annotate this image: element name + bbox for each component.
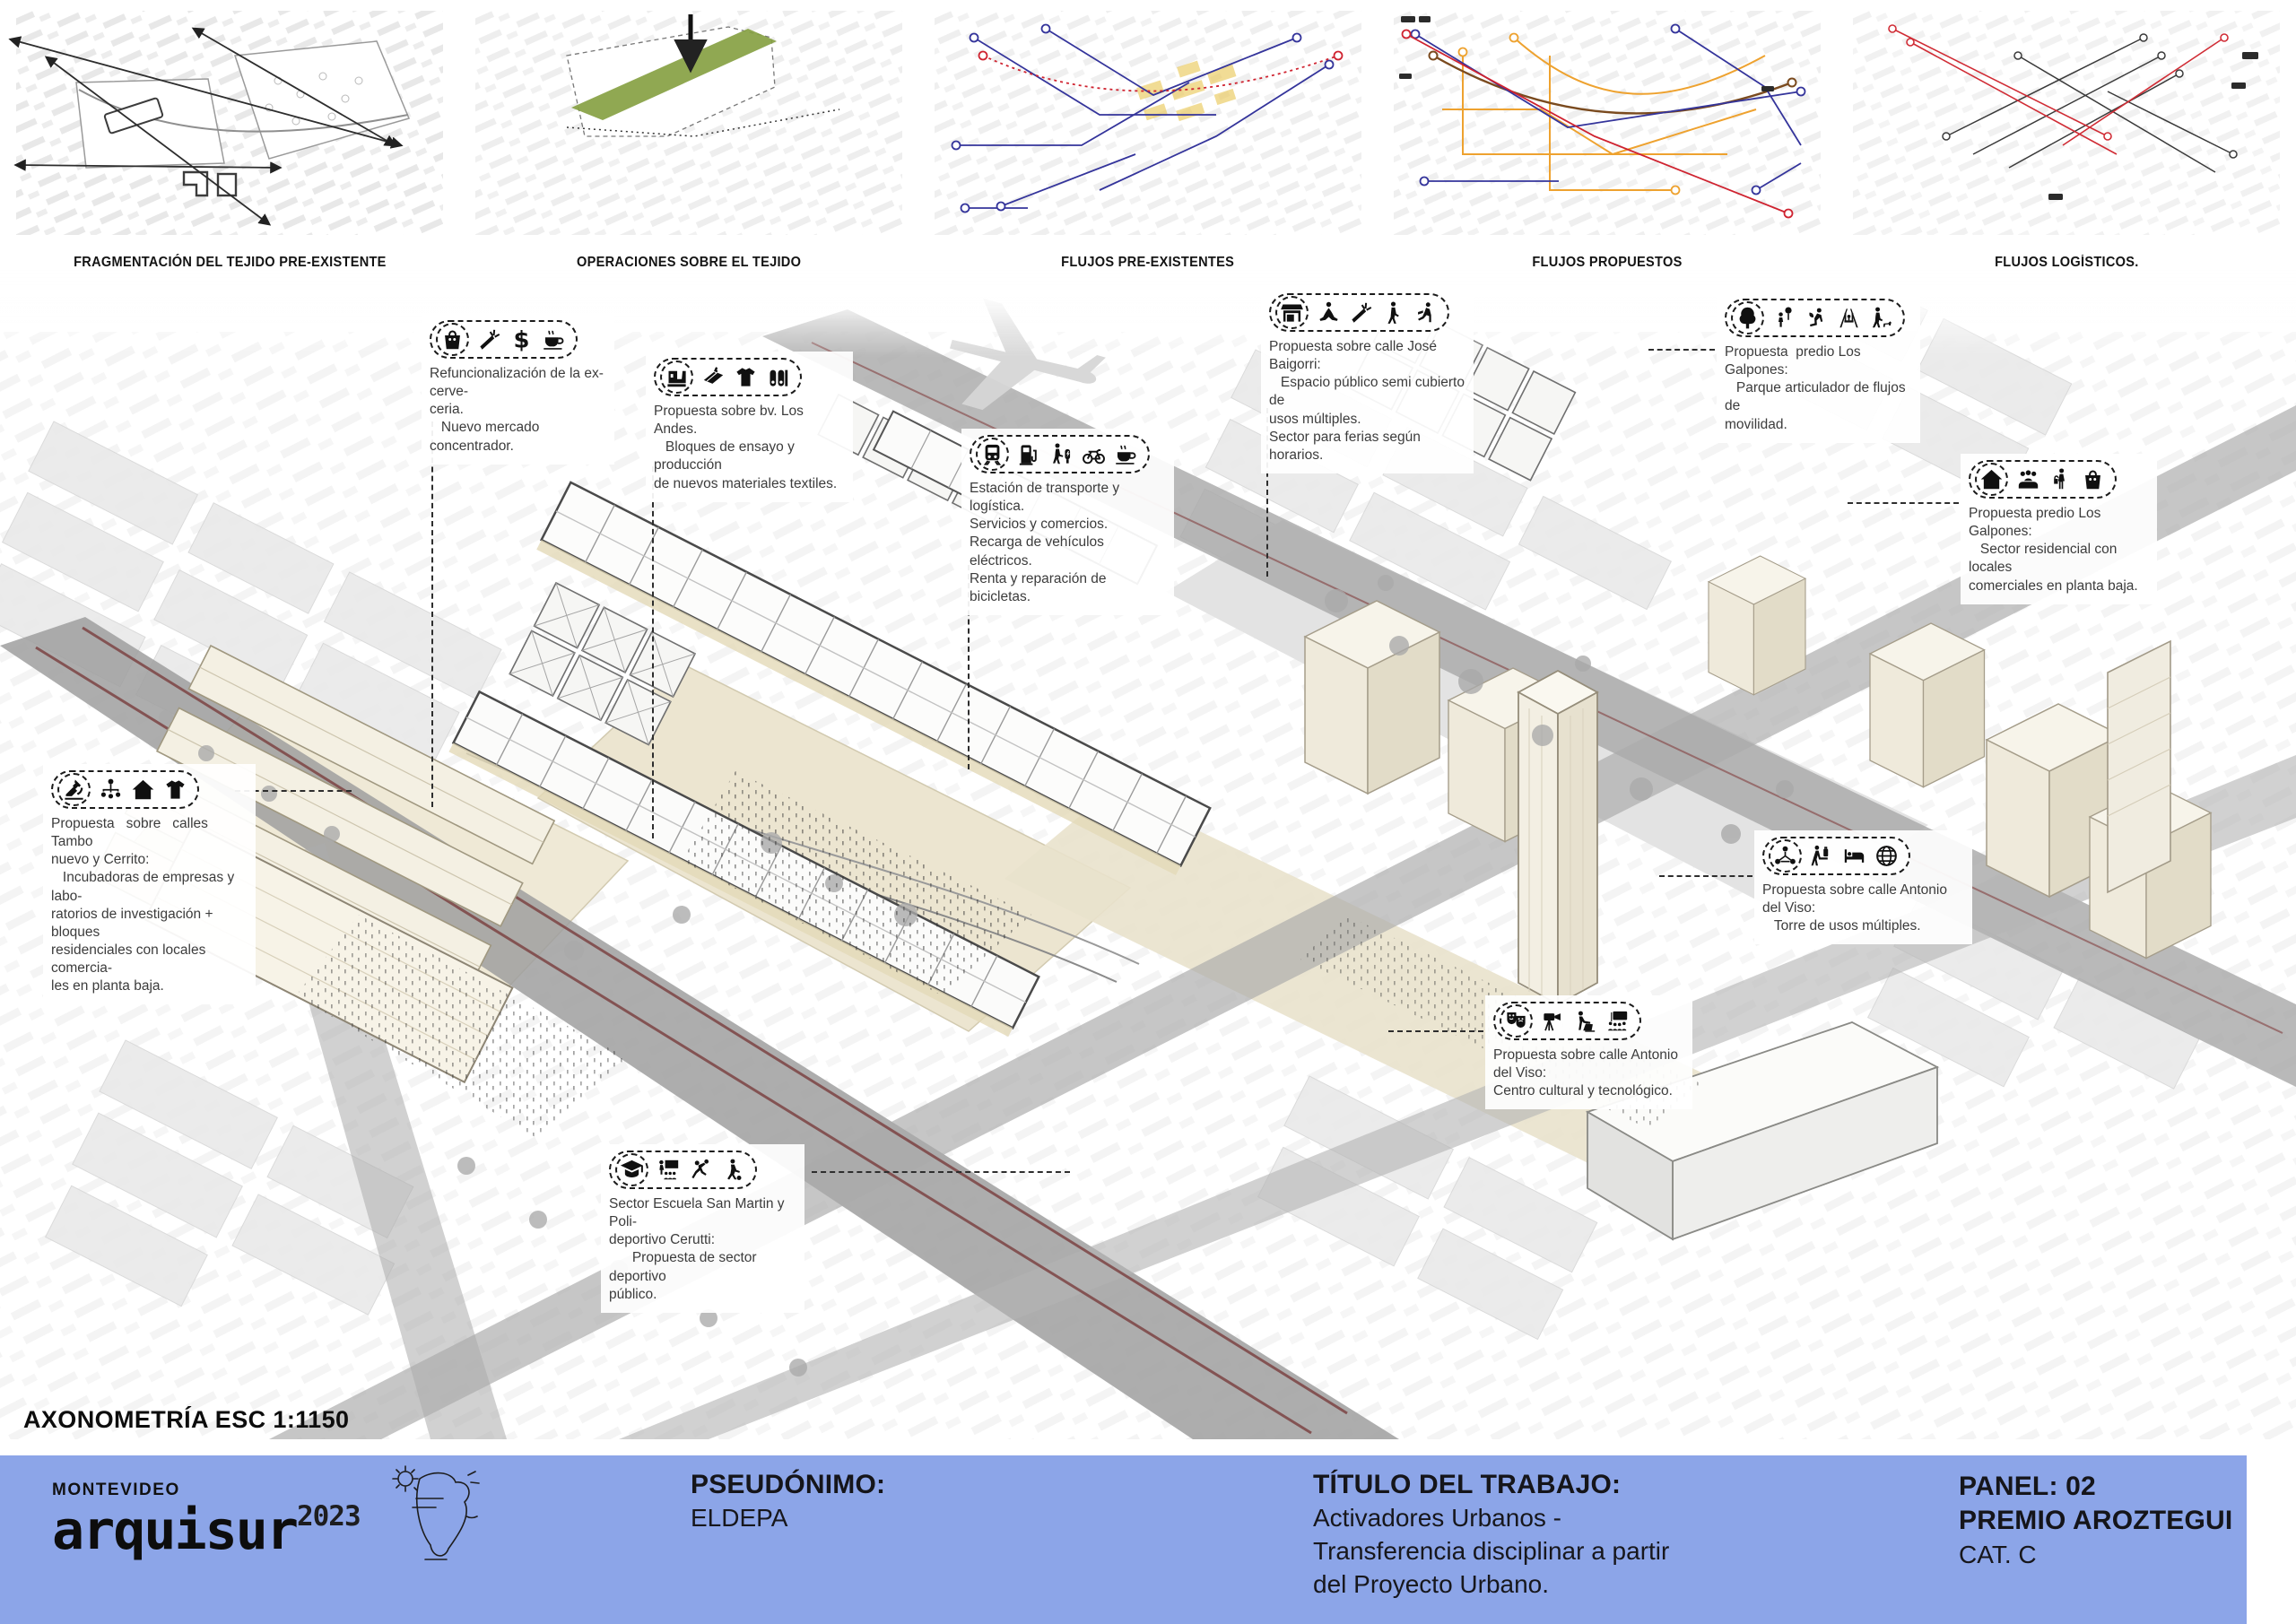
icon-capsule xyxy=(1762,837,1910,875)
callout-text: Propuesta predio Los Galpones: Parque ar… xyxy=(1725,343,1913,434)
bicycle-icon xyxy=(1082,442,1106,466)
icon-capsule xyxy=(1969,460,2117,499)
coffee-icon xyxy=(542,327,566,352)
reading-icon xyxy=(1413,300,1438,325)
charging-post-icon xyxy=(1049,442,1074,466)
callout-text: Propuesta predio Los Galpones: Sector re… xyxy=(1969,505,2150,595)
dollar-icon xyxy=(509,327,534,352)
axonometry-scale-label: AXONOMETRÍA ESC 1:1150 xyxy=(23,1406,349,1434)
logo-name: arquisur xyxy=(52,1499,297,1562)
callout-c10: Propuesta sobre calles Tambo nuevo y Cer… xyxy=(43,764,256,1004)
callout-text: Propuesta sobre calle Antonio del Viso: … xyxy=(1493,1046,1685,1100)
arquisur-logo: MONTEVIDEO arquisur2023 xyxy=(52,1481,361,1555)
diagram-existing-flows-label: FLUJOS PRE-EXISTENTES xyxy=(1062,255,1235,271)
carrot-icon xyxy=(1349,300,1373,325)
diagram-operations-figure xyxy=(459,0,918,253)
train-icon xyxy=(976,438,1009,471)
callout-text: Estación de transporte y logística. Serv… xyxy=(970,480,1167,606)
diagram-proposed-flows-figure xyxy=(1378,0,1837,253)
network-icon xyxy=(1769,839,1802,873)
diagram-logistic-flows-figure xyxy=(1837,0,2296,253)
leader-line-c9 xyxy=(812,1171,1070,1173)
icon-capsule xyxy=(1725,299,1905,337)
leader-line-c7 xyxy=(1659,875,1752,877)
footer-bar: MONTEVIDEO arquisur2023 PSEUDÓNIMO: ELDE… xyxy=(0,1455,2247,1624)
diagram-existing-flows: FLUJOS PRE-EXISTENTES xyxy=(918,0,1378,289)
diagram-fragmentation-figure xyxy=(0,0,459,253)
diagram-proposed-flows-label: FLUJOS PROPUESTOS xyxy=(1532,255,1682,271)
community-icon xyxy=(2016,467,2040,491)
child-balloon-icon xyxy=(1772,306,1796,330)
soccer-icon xyxy=(721,1158,745,1182)
hotel-bed-icon xyxy=(1842,844,1866,868)
leader-line-c8 xyxy=(1388,1030,1483,1032)
carrot-icon xyxy=(477,327,501,352)
diagram-fragmentation: FRAGMENTACIÓN DEL TEJIDO PRE-EXISTENTE xyxy=(0,0,459,289)
graduation-cap-icon xyxy=(615,1153,648,1186)
icon-capsule xyxy=(654,358,802,396)
basketball-icon xyxy=(689,1158,713,1182)
callout-c6: Propuesta predio Los Galpones: Sector re… xyxy=(1961,454,2157,604)
icon-capsule xyxy=(970,435,1150,473)
swing-icon xyxy=(1837,306,1861,330)
pseudonym-value: ELDEPA xyxy=(691,1502,885,1535)
callout-text: Propuesta sobre calle José Baigorri: Esp… xyxy=(1269,338,1466,465)
callout-c9: Sector Escuela San Martin y Poli- deport… xyxy=(601,1144,804,1313)
tshirt-icon xyxy=(734,365,758,389)
diagram-logistic-flows: FLUJOS LOGÍSTICOS. xyxy=(1837,0,2296,289)
work-title-lines: Activadores Urbanos - Transferencia disc… xyxy=(1313,1502,1669,1602)
coffee-icon xyxy=(1114,442,1138,466)
grocery-bag-icon xyxy=(436,323,469,356)
callout-text: Propuesta sobre calles Tambo nuevo y Cer… xyxy=(51,815,248,995)
competition-panel: FRAGMENTACIÓN DEL TEJIDO PRE-EXISTENTE O… xyxy=(0,0,2296,1624)
ev-charger-icon xyxy=(1017,442,1041,466)
icon-capsule xyxy=(1493,1002,1641,1040)
work-title-label: TÍTULO DEL TRABAJO: xyxy=(1313,1470,1669,1500)
org-chart-icon xyxy=(99,777,123,802)
award-name: PREMIO AROZTEGUI xyxy=(1959,1504,2232,1538)
diagram-operations: OPERACIONES SOBRE EL TEJIDO xyxy=(459,0,918,289)
callout-text: Propuesta sobre calle Antonio del Viso: … xyxy=(1762,881,1965,935)
porter-icon xyxy=(1810,844,1834,868)
market-stall-icon xyxy=(1275,296,1309,329)
laptop-icon xyxy=(1573,1009,1597,1033)
callout-c1: Refuncionalización de la ex-cerve- ceria… xyxy=(422,314,614,465)
icon-capsule xyxy=(609,1151,757,1189)
globe-icon xyxy=(1874,844,1899,868)
icon-capsule xyxy=(1269,293,1449,332)
diagram-logistic-flows-label: FLUJOS LOGÍSTICOS. xyxy=(1995,255,2139,271)
pseudonym-label: PSEUDÓNIMO: xyxy=(691,1470,885,1500)
pedestrian-icon xyxy=(1381,300,1405,325)
panel-info-block: PANEL: 02 PREMIO AROZTEGUI CAT. C xyxy=(1959,1470,2232,1572)
icon-capsule xyxy=(51,770,199,809)
callout-c3: Estación de transporte y logística. Serv… xyxy=(961,429,1174,615)
pseudonym-block: PSEUDÓNIMO: ELDEPA xyxy=(691,1470,885,1535)
callout-text: Refuncionalización de la ex-cerve- ceria… xyxy=(430,365,607,456)
fabric-icon xyxy=(701,365,726,389)
filming-icon xyxy=(1541,1009,1565,1033)
logo-city: MONTEVIDEO xyxy=(52,1481,361,1500)
classroom-icon xyxy=(657,1158,681,1182)
diagram-strip: FRAGMENTACIÓN DEL TEJIDO PRE-EXISTENTE O… xyxy=(0,0,2296,289)
category: CAT. C xyxy=(1959,1539,2232,1572)
callout-c5: Propuesta predio Los Galpones: Parque ar… xyxy=(1717,292,1920,443)
house-icon xyxy=(1975,463,2008,496)
dog-walking-icon xyxy=(1869,306,1893,330)
yoga-icon xyxy=(1317,300,1341,325)
callout-text: Sector Escuela San Martin y Poli- deport… xyxy=(609,1195,797,1304)
gardening-icon xyxy=(1805,306,1829,330)
callout-c2: Propuesta sobre bv. Los Andes. Bloques d… xyxy=(646,352,853,502)
leader-line-c2 xyxy=(652,466,654,838)
tshirt-icon xyxy=(163,777,187,802)
south-america-sketch xyxy=(386,1463,484,1570)
house-icon xyxy=(131,777,155,802)
diagram-fragmentation-label: FRAGMENTACIÓN DEL TEJIDO PRE-EXISTENTE xyxy=(74,255,387,271)
panel-number: PANEL: 02 xyxy=(1959,1470,2232,1504)
microscope-icon xyxy=(57,773,91,806)
icon-capsule xyxy=(430,320,578,359)
callout-c7: Propuesta sobre calle Antonio del Viso: … xyxy=(1754,830,1972,944)
presentation-icon xyxy=(1605,1009,1630,1033)
tree-icon xyxy=(1731,301,1764,334)
leader-line-c6 xyxy=(1848,502,1959,504)
leader-line-c5 xyxy=(1648,349,1715,351)
logo-year: 2023 xyxy=(297,1500,361,1533)
diagram-existing-flows-figure xyxy=(918,0,1378,253)
diagram-proposed-flows: FLUJOS PROPUESTOS xyxy=(1378,0,1837,289)
sewing-machine-icon xyxy=(660,360,693,394)
fabric-rolls-icon xyxy=(766,365,790,389)
work-title-block: TÍTULO DEL TRABAJO: Activadores Urbanos … xyxy=(1313,1470,1669,1602)
callout-c4: Propuesta sobre calle José Baigorri: Esp… xyxy=(1261,287,1474,473)
theater-masks-icon xyxy=(1500,1004,1533,1038)
callout-c8: Propuesta sobre calle Antonio del Viso: … xyxy=(1485,995,1692,1109)
grocery-bag-icon xyxy=(2081,467,2105,491)
shopper-icon xyxy=(2048,467,2073,491)
diagram-operations-label: OPERACIONES SOBRE EL TEJIDO xyxy=(577,255,801,271)
leader-line-c1 xyxy=(431,421,433,807)
callout-text: Propuesta sobre bv. Los Andes. Bloques d… xyxy=(654,403,846,493)
